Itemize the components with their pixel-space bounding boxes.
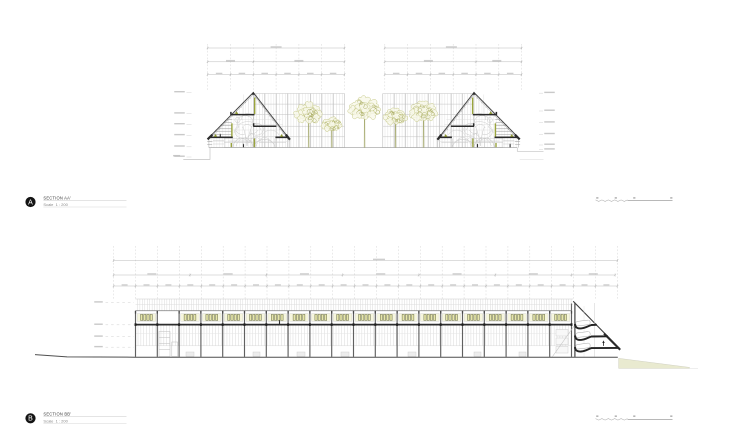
svg-text:A: A <box>28 199 33 206</box>
svg-text:B: B <box>28 416 33 423</box>
svg-text:SECTION AA': SECTION AA' <box>43 195 71 200</box>
svg-text:SECTION BB': SECTION BB' <box>43 412 71 417</box>
svg-text:Scale 1 : 200: Scale 1 : 200 <box>43 202 68 207</box>
svg-text:Scale 1 : 200: Scale 1 : 200 <box>43 419 68 424</box>
